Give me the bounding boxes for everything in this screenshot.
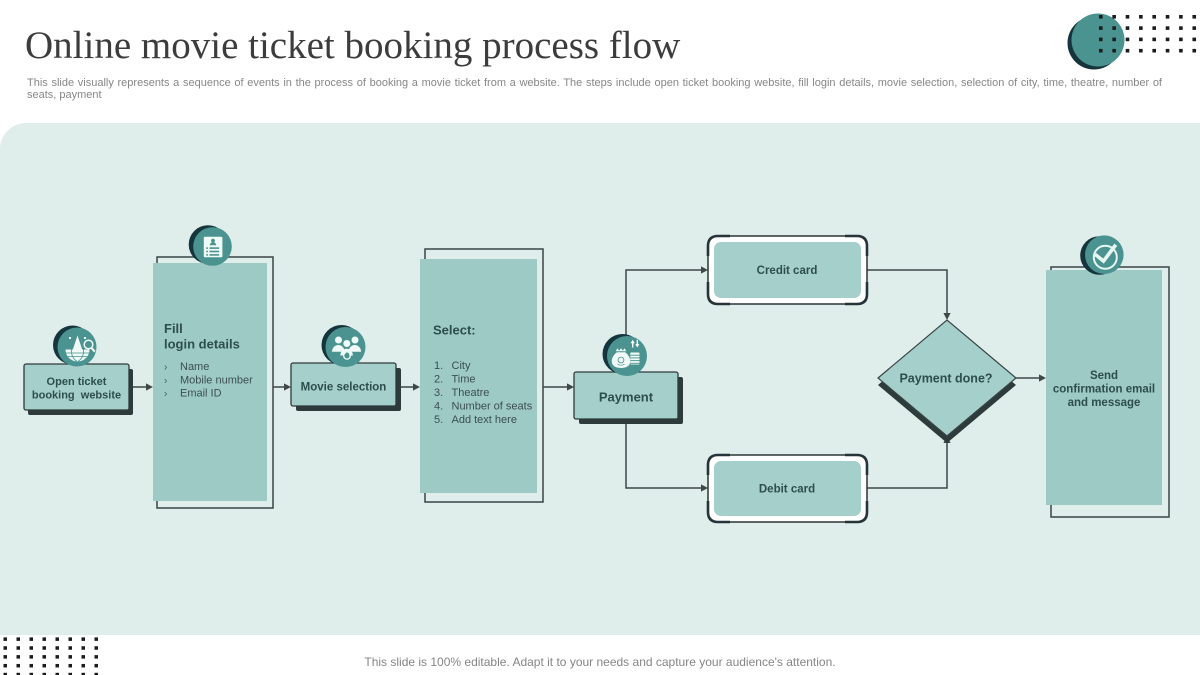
svg-text:›: › (164, 389, 167, 400)
svg-text:1.City: 1.City (434, 360, 471, 372)
svg-text:and message: and message (1068, 397, 1141, 409)
svg-text:booking website: booking website (32, 390, 121, 402)
svg-text:Open ticket: Open ticket (47, 376, 107, 388)
svg-text:Mobile number: Mobile number (180, 375, 253, 387)
svg-text:Debit card: Debit card (759, 484, 815, 496)
svg-text:Select:: Select: (433, 323, 476, 338)
svg-text:Fill: Fill (164, 321, 183, 336)
svg-text:›: › (164, 376, 167, 387)
svg-text:Email ID: Email ID (180, 388, 222, 400)
svg-text:Movie selection: Movie selection (301, 382, 387, 394)
svg-text:Credit card: Credit card (757, 265, 818, 277)
svg-text:3.Theatre: 3.Theatre (434, 387, 489, 399)
svg-text:Send: Send (1090, 370, 1118, 382)
svg-text:›: › (164, 362, 167, 373)
svg-text:Payment: Payment (599, 390, 654, 405)
svg-text:confirmation email: confirmation email (1053, 383, 1155, 395)
svg-text:2.Time: 2.Time (434, 374, 476, 386)
svg-text:Name: Name (180, 361, 209, 373)
svg-text:login details: login details (164, 337, 240, 352)
svg-text:Payment done?: Payment done? (899, 372, 992, 386)
